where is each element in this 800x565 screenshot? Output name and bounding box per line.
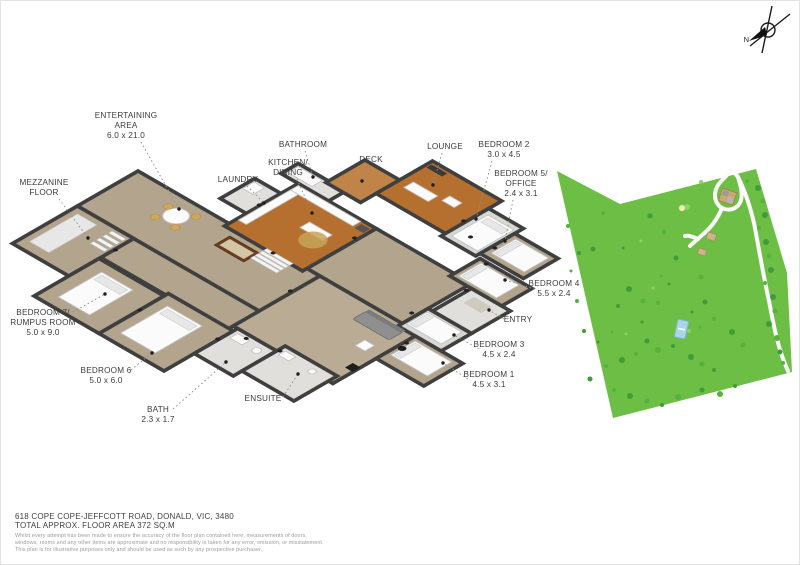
leader-dot (224, 360, 227, 363)
leader-dot (452, 333, 455, 336)
leader-dot (503, 239, 506, 242)
leader-dot (177, 207, 180, 210)
room-label-text: MEZZANINEFLOOR (19, 178, 68, 197)
leader-dot (103, 292, 106, 295)
room-label-text: ENSUITE (245, 394, 282, 403)
room-label-text: BEDROOM 23.0 x 4.5 (479, 140, 530, 159)
tree-icon (566, 224, 570, 228)
tree-icon (604, 364, 608, 368)
site-map (557, 169, 792, 418)
tree-icon (668, 283, 671, 286)
tree-icon (733, 384, 737, 388)
tree-icon (757, 226, 761, 230)
tree-icon (660, 275, 663, 278)
tree-icon (729, 329, 735, 335)
site-tank (679, 205, 685, 211)
floorplan-page: ENTERTAININGAREA6.0 x 21.0MEZZANINEFLOOR… (0, 0, 800, 565)
leader-dot (311, 175, 314, 178)
tree-icon (634, 352, 638, 356)
tree-icon (622, 247, 625, 250)
leader-dot (296, 372, 299, 375)
tree-icon (712, 368, 716, 372)
room-label-text: BEDROOM 5/OFFICE2.4 x 3.1 (494, 169, 548, 198)
leader-dot (441, 361, 444, 364)
tree-icon (761, 199, 766, 204)
tree-icon (577, 251, 581, 255)
tree-icon (768, 267, 774, 273)
lot-boundary (557, 169, 792, 418)
leader-dot (431, 183, 434, 186)
disclaimer: Whilst every attempt has been made to en… (15, 533, 324, 554)
tree-icon (641, 299, 646, 304)
tree-icon (774, 335, 780, 341)
tree-icon (575, 299, 579, 303)
tree-icon (700, 388, 705, 393)
tree-icon (717, 391, 723, 397)
tree-icon (687, 329, 691, 333)
tree-icon (591, 247, 596, 252)
leader-dot (86, 236, 89, 239)
tree-icon (762, 212, 768, 218)
room-label-text: BATHROOM (279, 140, 327, 149)
room-label-text: BEDROOM 14.5 x 3.1 (464, 370, 515, 389)
tree-icon (645, 339, 650, 344)
tree-icon (645, 399, 650, 404)
leader-dot (487, 308, 490, 311)
compass-icon: N (744, 6, 790, 53)
tree-icon (582, 329, 586, 333)
tree-icon (641, 321, 644, 324)
tree-icon (625, 333, 628, 336)
leader-dot (474, 217, 477, 220)
tree-icon (763, 281, 767, 285)
tree-icon (652, 287, 655, 290)
tree-icon (778, 350, 783, 355)
tree-icon (773, 309, 778, 314)
tree-icon (675, 394, 681, 400)
leader-line (173, 362, 226, 409)
tree-icon (660, 403, 664, 407)
room-label-text: BEDROOM 34.5 x 2.4 (474, 340, 525, 359)
tree-icon (655, 347, 661, 353)
tree-icon (656, 301, 660, 305)
floorplan-scene: ENTERTAININGAREA6.0 x 21.0MEZZANINEFLOOR… (1, 1, 800, 565)
leader-dot (262, 201, 265, 204)
floor-area-text: TOTAL APPROX. FLOOR AREA 372 SQ.M (15, 521, 324, 530)
tree-icon (597, 341, 600, 344)
room-label-text: BEDROOM 45.5 x 2.4 (529, 279, 580, 298)
room-label-bath: BATH2.3 x 1.7 (141, 360, 227, 424)
tree-icon (745, 179, 749, 183)
tree-icon (763, 239, 769, 245)
tree-icon (601, 211, 605, 215)
tree-icon (570, 270, 573, 273)
tree-icon (766, 321, 772, 327)
tree-icon (699, 275, 704, 280)
property-address: 618 COPE COPE-JEFFCOTT ROAD, DONALD, VIC… (15, 512, 324, 521)
tree-icon (619, 357, 625, 363)
tree-icon (612, 388, 616, 392)
leader-dot (503, 278, 506, 281)
tree-icon (781, 361, 785, 365)
disclaimer-line: windows, rooms and any other items are a… (15, 540, 324, 547)
tree-icon (699, 180, 703, 184)
tree-icon (616, 304, 620, 308)
room-label-text: DECK (359, 155, 383, 164)
tree-icon (700, 362, 705, 367)
room-label-text: LAUNDRY (218, 175, 259, 184)
tree-icon (767, 254, 772, 259)
disclaimer-line: This plan is for illustrative purposes o… (15, 547, 324, 554)
tree-icon (674, 256, 679, 261)
tree-icon (648, 214, 653, 219)
tree-icon (741, 343, 746, 348)
room-label-text: BEDROOM 65.0 x 6.0 (81, 366, 132, 385)
room-label-text: ENTERTAININGAREA6.0 x 21.0 (95, 111, 158, 140)
room-label-text: BATH2.3 x 1.7 (141, 405, 174, 424)
leader-dot (310, 211, 313, 214)
tree-icon (691, 311, 694, 314)
leader-dot (360, 179, 363, 182)
tree-icon (688, 354, 694, 360)
tree-icon (640, 240, 643, 243)
room-label-text: ENTRY (504, 315, 533, 324)
room-label-text: KITCHEN/DINING (268, 158, 308, 177)
tree-icon (671, 344, 675, 348)
tree-icon (611, 331, 614, 334)
tree-icon (662, 230, 666, 234)
compass-north-label: N (744, 35, 749, 44)
tree-icon (755, 185, 761, 191)
tree-icon (626, 286, 632, 292)
tree-icon (703, 300, 708, 305)
floor-plan: ENTERTAININGAREA6.0 x 21.0MEZZANINEFLOOR… (1, 81, 623, 454)
footer: 618 COPE COPE-JEFFCOTT ROAD, DONALD, VIC… (15, 512, 324, 554)
tree-icon (627, 393, 633, 399)
disclaimer-line: Whilst every attempt has been made to en… (15, 533, 324, 540)
tree-icon (699, 326, 702, 329)
tree-icon (770, 294, 776, 300)
tree-icon (588, 377, 593, 382)
leader-dot (150, 351, 153, 354)
room-label-text: LOUNGE (427, 142, 463, 151)
tree-icon (712, 317, 716, 321)
room-label-text: BEDROOM 7/RUMPUS ROOM5.0 x 9.0 (10, 308, 75, 337)
